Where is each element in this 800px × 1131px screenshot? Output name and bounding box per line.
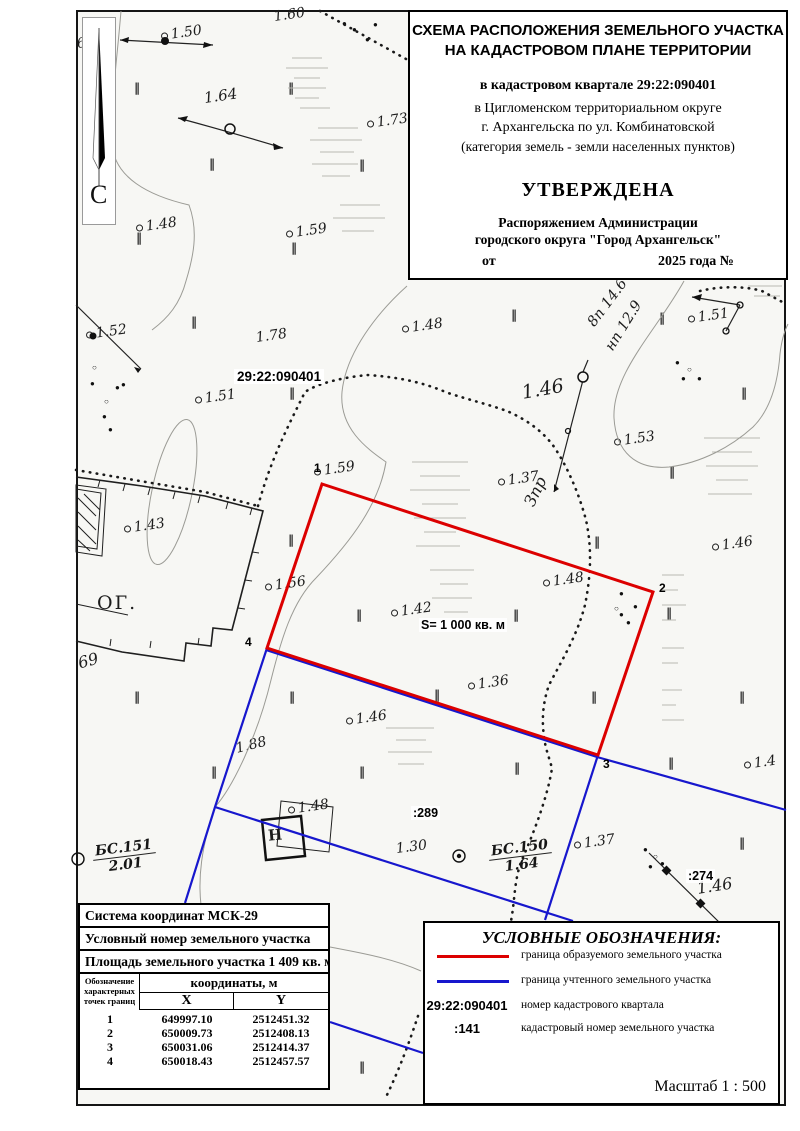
title-block: СХЕМА РАСПОЛОЖЕНИЯ ЗЕМЕЛЬНОГО УЧАСТКА НА… xyxy=(408,10,788,280)
legend-item-quarter-number: 29:22:090401 номер кадастрового квартала xyxy=(425,998,778,1014)
quarter-number-label: 29:22:090401 xyxy=(234,369,324,384)
x-value: 650031.06 xyxy=(140,1040,234,1054)
area-row: Площадь земельного участка 1 409 кв. м xyxy=(80,951,328,974)
title-quarter: в кадастровом квартале 29:22:090401 xyxy=(410,78,786,94)
cadastral-scheme-page: 61.501.601.641.731.481.591.521.781.511.4… xyxy=(0,0,800,1131)
y-value: 2512408.13 xyxy=(234,1026,328,1040)
benchmark-bs150: БС.150 1.64 xyxy=(487,836,554,876)
point-number: 1 xyxy=(80,1012,140,1026)
coord-system-row: Система координат МСК-29 xyxy=(80,905,328,928)
north-arrow: С xyxy=(82,17,116,225)
legend-item-blue-boundary: граница учтенного земельного участка xyxy=(425,973,778,989)
approved-label: УТВЕРЖДЕНА xyxy=(410,179,786,202)
date-from-label: от xyxy=(482,254,496,270)
x-value: 650009.73 xyxy=(140,1026,234,1040)
legend: УСЛОВНЫЕ ОБОЗНАЧЕНИЯ: граница образуемог… xyxy=(423,921,780,1105)
coordinates-table: Система координат МСК-29 Условный номер … xyxy=(78,903,330,1090)
parcel-274-label: :274 xyxy=(686,869,715,883)
blue-line-sample xyxy=(437,980,509,983)
label-69: 69 xyxy=(76,649,101,673)
coords-header: координаты, м xyxy=(140,974,328,993)
boundary-point-label: 3 xyxy=(603,757,610,771)
y-header: Y xyxy=(234,993,328,1010)
approval-order: Распоряжением Администрации городского о… xyxy=(410,214,786,248)
legend-title: УСЛОВНЫЕ ОБОЗНАЧЕНИЯ: xyxy=(425,928,778,948)
point-number: 3 xyxy=(80,1040,140,1054)
title-district2: г. Архангельска по ул. Комбинатовской xyxy=(410,119,786,136)
boundary-point-label: 4 xyxy=(245,635,252,649)
benchmark-bs151: БС.151 2.01 xyxy=(91,836,158,876)
legend-item-parcel-number: :141 кадастровый номер земельного участк… xyxy=(425,1021,778,1037)
points-column-header: Обозначение характерных точек границ xyxy=(80,974,140,1010)
y-value: 2512451.32 xyxy=(234,1012,328,1026)
parcel-289-label: :289 xyxy=(411,806,440,820)
y-value: 2512414.37 xyxy=(234,1040,328,1054)
building-label: Н xyxy=(267,825,283,844)
table-header: Обозначение характерных точек границ коо… xyxy=(80,974,328,1010)
zpr-road-label: Зпр xyxy=(520,474,550,510)
x-value: 650018.43 xyxy=(140,1054,234,1068)
y-value: 2512457.57 xyxy=(234,1054,328,1068)
conditional-number-row: Условный номер земельного участка xyxy=(80,928,328,951)
date-year-label: 2025 года № xyxy=(658,254,734,270)
x-value: 649997.10 xyxy=(140,1012,234,1026)
table-body: 1 649997.10 2512451.32 2 650009.73 25124… xyxy=(80,1010,328,1068)
title-district1: в Цигломенском территориальном округе xyxy=(410,100,786,117)
point-number: 2 xyxy=(80,1026,140,1040)
og-label: ОГ. xyxy=(97,592,137,614)
x-header: X xyxy=(140,993,234,1010)
title-category: (категория земель - земли населенных пун… xyxy=(410,138,786,155)
legend-item-red-boundary: граница образуемого земельного участка xyxy=(425,948,778,964)
north-letter: С xyxy=(90,180,107,210)
area-label: S= 1 000 кв. м xyxy=(419,618,507,632)
scheme-title: СХЕМА РАСПОЛОЖЕНИЯ ЗЕМЕЛЬНОГО УЧАСТКА НА… xyxy=(410,21,786,61)
red-line-sample xyxy=(437,955,509,958)
point-number: 4 xyxy=(80,1054,140,1068)
scale-label: Масштаб 1 : 500 xyxy=(654,1078,766,1096)
boundary-point-label: 1 xyxy=(314,461,321,475)
boundary-point-label: 2 xyxy=(659,581,666,595)
